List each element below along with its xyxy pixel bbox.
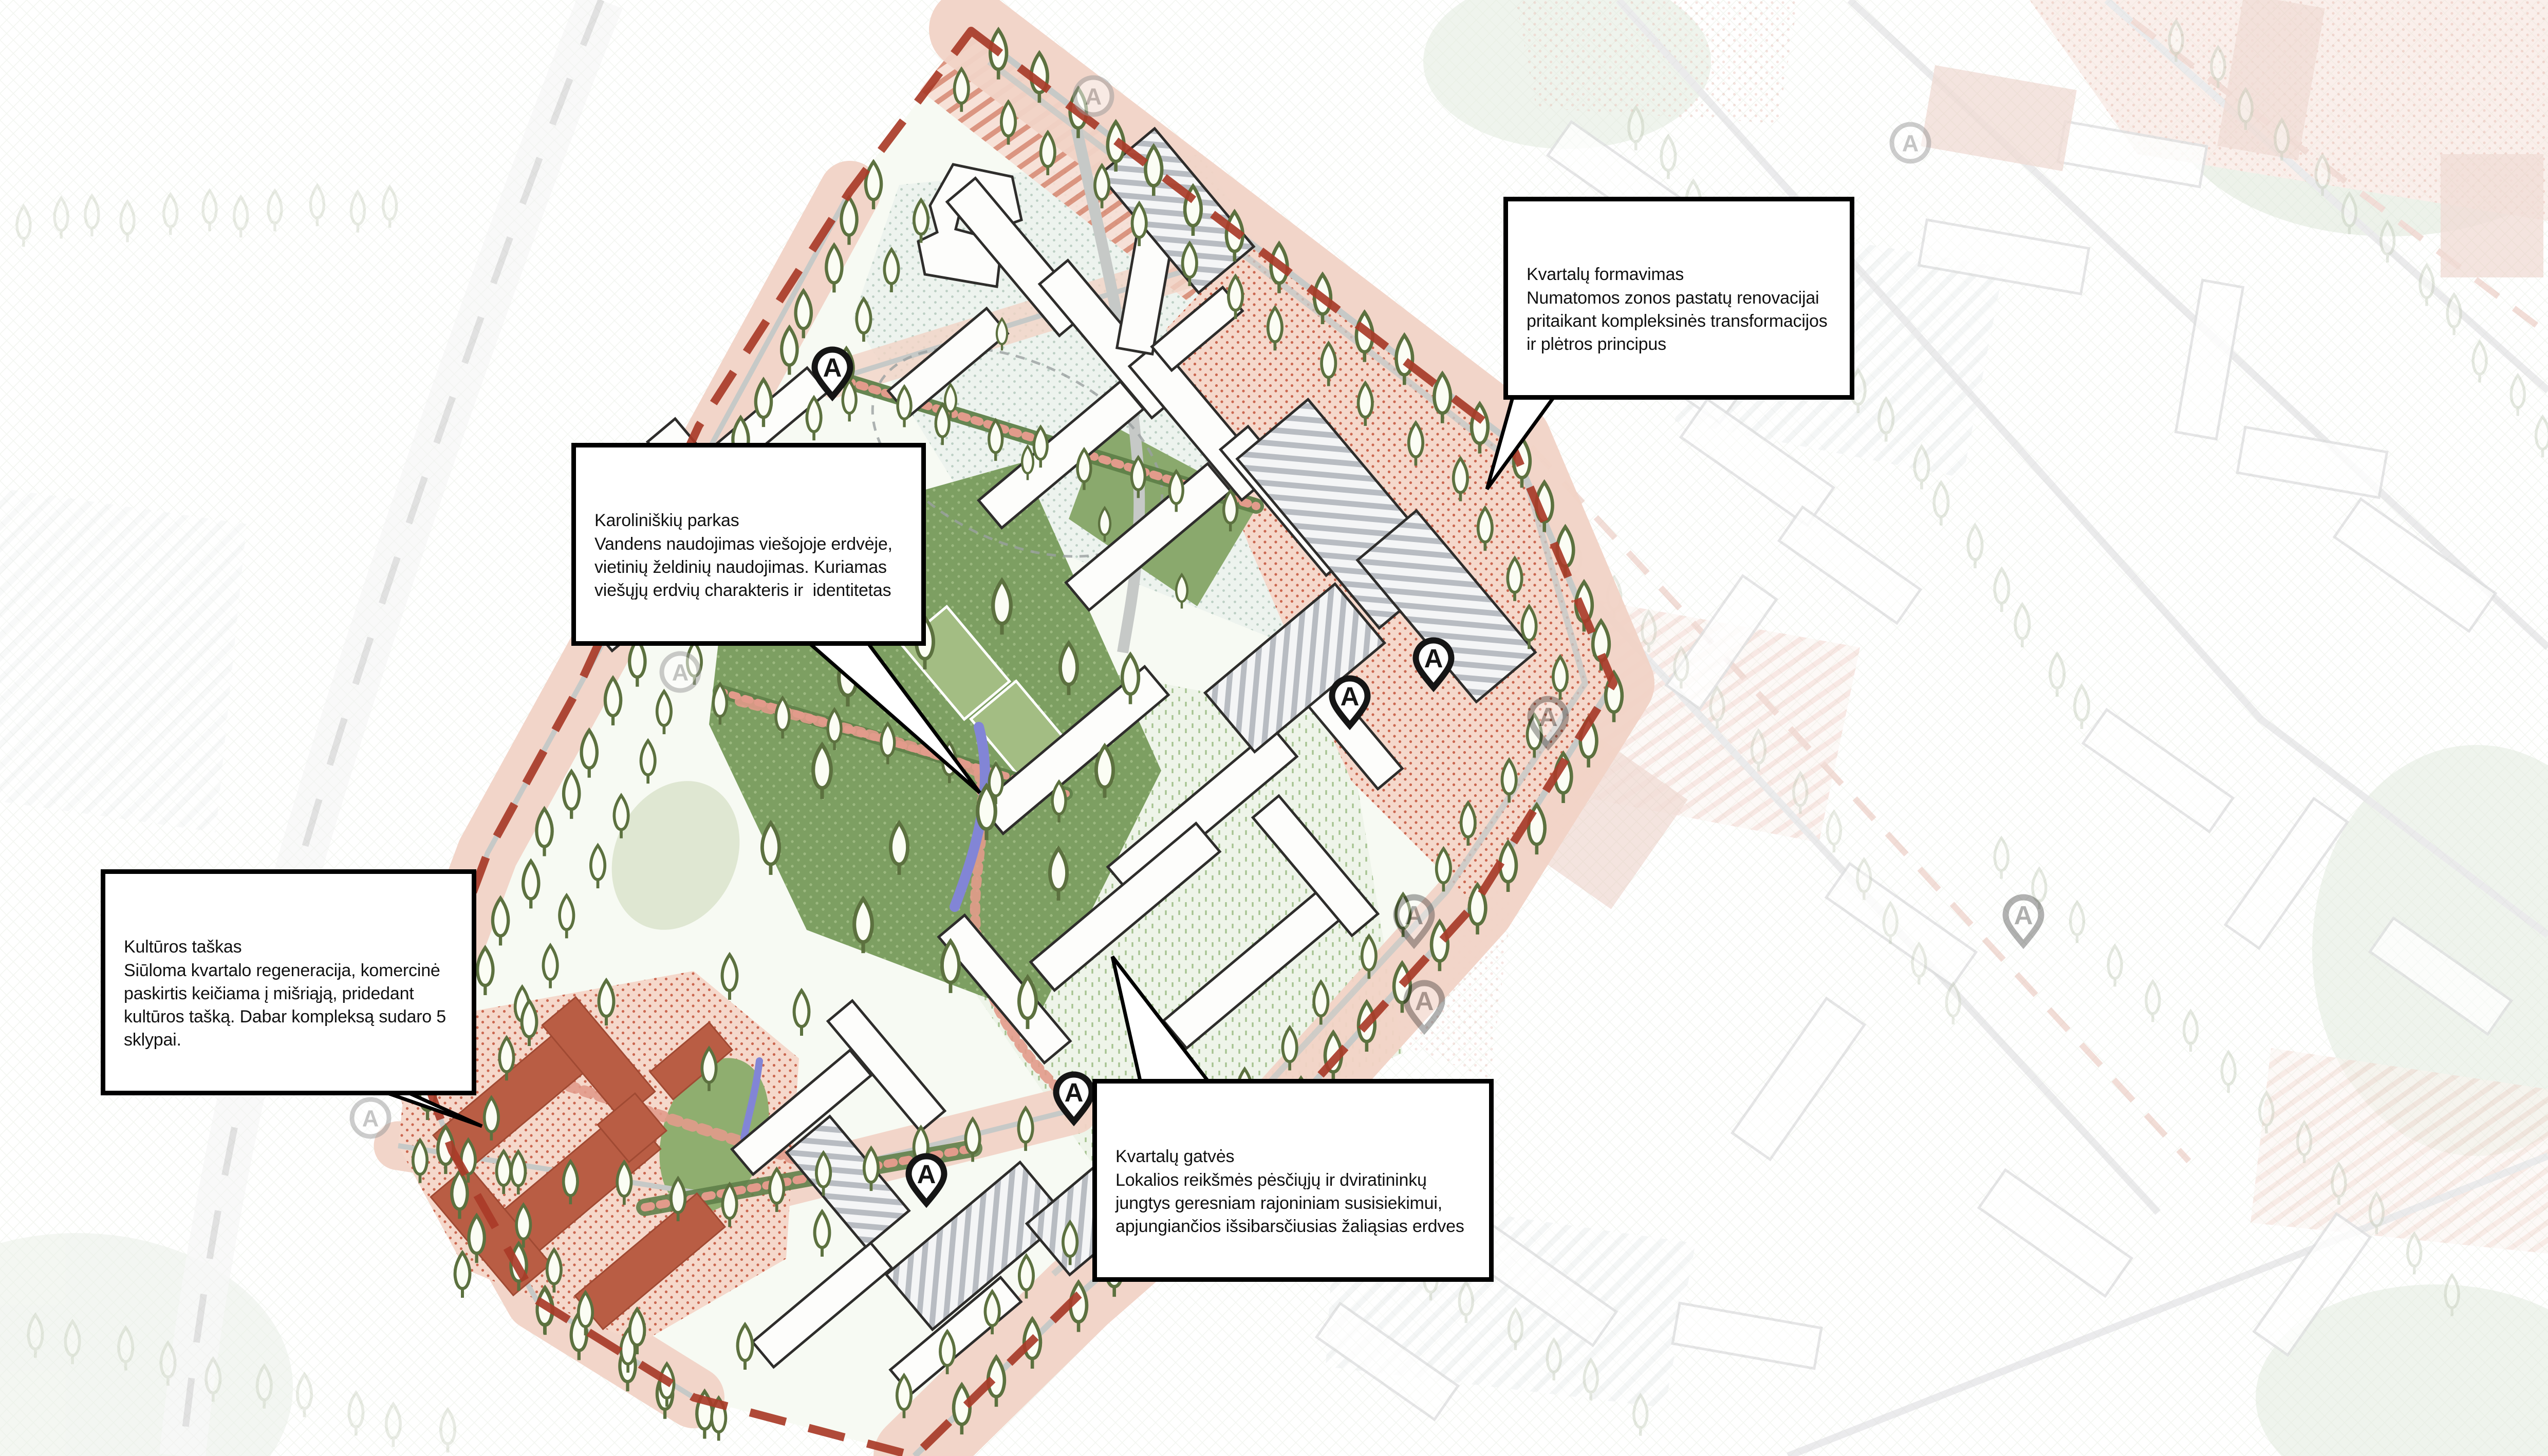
callout-body: Siūloma kvartalo regeneracija, komercinė… [124,959,453,1052]
callout-karoliniskiu-parkas: Karoliniškių parkasVandens naudojimas vi… [571,443,926,646]
callout-body: Numatomos zonos pastatų renovacijai prit… [1527,287,1831,357]
callout-title: Kvartalų formavimas [1527,263,1831,286]
callout-kvartalu-formavimas: Kvartalų formavimasNumatomos zonos pasta… [1503,197,1854,400]
callout-title: Karoliniškių parkas [594,509,903,532]
a-marker-circle-faded [1892,124,1929,161]
a-marker-circle-faded [352,1099,389,1136]
callout-kvartalu-gatves: Kvartalų gatvėsLokalios reikšmės pėsčiųj… [1092,1079,1494,1282]
a-marker-circle-faded [662,654,699,690]
page: { "document": { "type": "urban-masterpla… [0,0,2548,1456]
callout-title: Kultūros taškas [124,936,453,959]
callout-kulturos-taskas: Kultūros taškasSiūloma kvartalo regenera… [101,869,476,1095]
callout-title: Kvartalų gatvės [1115,1145,1471,1168]
a-marker-circle-faded [1075,78,1112,115]
callout-body: Lokalios reikšmės pėsčiųjų ir dviratinin… [1115,1169,1471,1239]
callout-body: Vandens naudojimas viešojoje erdvėje, vi… [594,533,903,603]
